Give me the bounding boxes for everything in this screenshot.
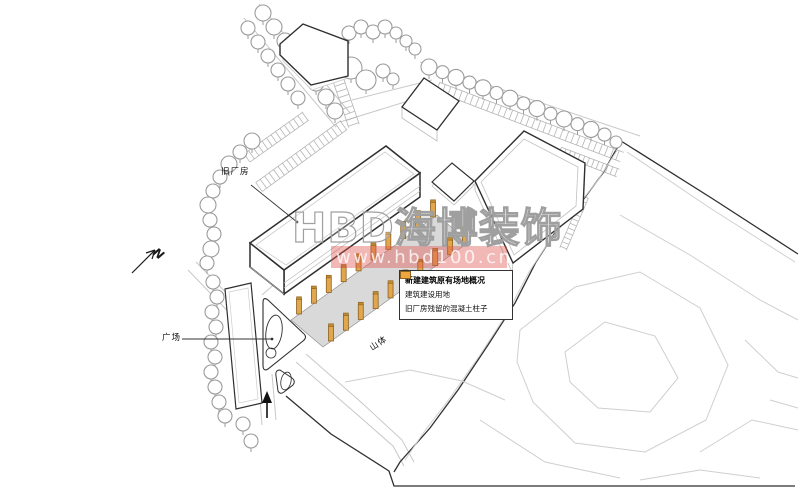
road-line <box>272 374 276 420</box>
legend-item-label: 旧厂房残留的混凝土柱子 <box>405 303 488 314</box>
concrete-column <box>326 275 331 292</box>
tree-icon <box>409 43 421 59</box>
concrete-column <box>297 297 302 314</box>
tree-icon <box>556 111 572 131</box>
tree-icon <box>271 63 285 81</box>
site-plan-page: N www.hbd100.cn HBD海博装饰 旧厂房 广场 山体 新建建筑原有… <box>0 0 800 490</box>
legend-swatch-orange <box>400 271 411 279</box>
legend-box: 新建建筑原有场地概况 建筑建设用地 旧厂房残留的混凝土柱子 <box>399 270 513 320</box>
label-plaza: 广场 <box>162 334 181 343</box>
tree-icon <box>517 97 530 114</box>
tree-icon <box>356 70 376 94</box>
building-thin-left <box>225 283 262 409</box>
tree-icon <box>490 87 503 104</box>
tree-icon <box>327 103 343 123</box>
contour-line <box>345 370 505 400</box>
building-small-2 <box>432 163 474 201</box>
legend-item-concrete-columns: 旧厂房残留的混凝土柱子 <box>405 303 507 314</box>
north-label: N <box>150 245 167 262</box>
tree-icon <box>571 118 584 135</box>
contour-line <box>770 400 798 408</box>
legend-item-label: 建筑建设用地 <box>405 289 450 300</box>
label-old-factory: 旧厂房 <box>221 168 250 177</box>
legend-item-construction-land: 建筑建设用地 <box>405 289 507 300</box>
hatched-strip <box>333 77 359 128</box>
contour-line <box>620 215 798 320</box>
tree-icon <box>236 417 250 435</box>
tree-icon <box>241 21 255 39</box>
road-line <box>306 354 414 462</box>
contour-line <box>745 340 798 378</box>
concrete-column <box>358 302 363 319</box>
tree-icon <box>436 66 449 83</box>
concrete-column <box>373 291 378 308</box>
concrete-column <box>329 324 334 341</box>
entrance-arrow-icon <box>262 391 272 418</box>
watermark: www.hbd100.cn HBD海博装饰 <box>292 204 563 268</box>
concrete-column <box>343 313 348 330</box>
contour-line <box>517 272 728 452</box>
old-factory-leader-line <box>251 185 297 222</box>
tree-icon <box>421 59 437 79</box>
tree-icon <box>244 434 258 452</box>
tree-icon <box>218 409 232 427</box>
site-plan-canvas: N www.hbd100.cn HBD海博装饰 <box>0 0 800 490</box>
watermark-brand: HBD海博装饰 <box>292 204 563 252</box>
concrete-column <box>311 286 316 303</box>
contour-line <box>640 470 760 480</box>
concrete-column <box>388 281 393 298</box>
tree-icon <box>544 107 557 124</box>
leader-dot <box>271 338 274 341</box>
tree-icon <box>281 77 295 95</box>
tree-icon <box>291 91 305 109</box>
tree-icon <box>598 128 611 145</box>
contour-line <box>565 322 678 412</box>
tree-icon <box>387 73 399 89</box>
contour-line <box>480 420 620 478</box>
tree-icon <box>463 76 476 93</box>
north-arrow-icon: N <box>132 245 167 273</box>
tree-icon <box>251 35 265 53</box>
tree-icon <box>200 256 214 274</box>
building-top-pentagon <box>280 24 348 85</box>
contour-line <box>700 420 798 452</box>
tree-icon <box>261 49 275 67</box>
hatched-strip <box>256 121 347 192</box>
tree-icon <box>610 136 622 152</box>
road-line <box>296 362 404 466</box>
mountain-boundary <box>621 141 798 254</box>
legend-title: 新建建筑原有场地概况 <box>405 275 507 286</box>
